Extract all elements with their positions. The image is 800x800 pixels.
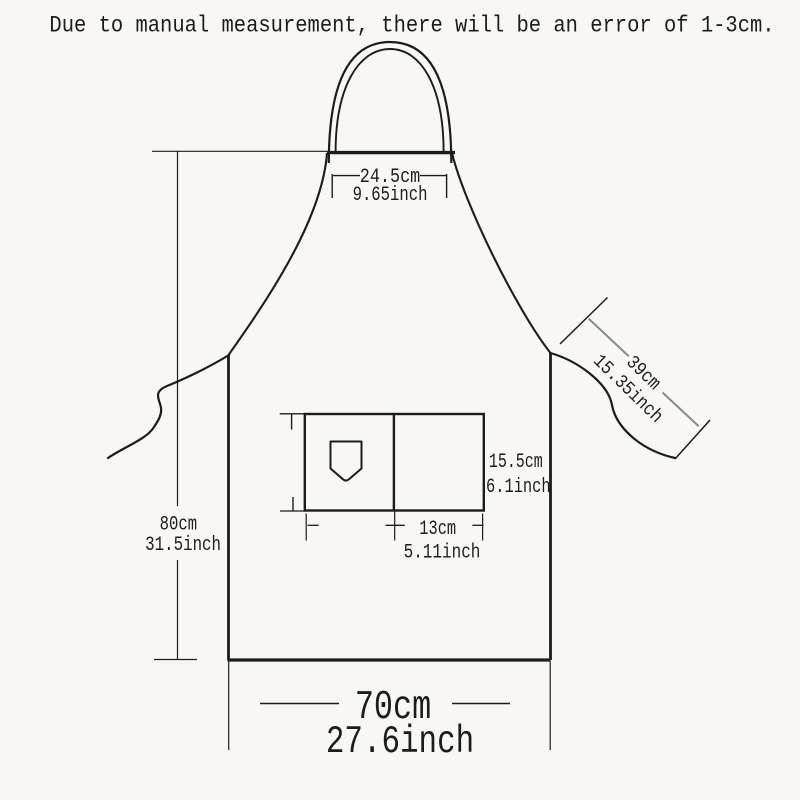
svg-text:80cm: 80cm [160,514,197,536]
svg-text:5.11inch: 5.11inch [404,542,481,564]
svg-text:31.5inch: 31.5inch [145,534,221,556]
svg-text:13cm: 13cm [419,518,456,540]
svg-text:6.1inch: 6.1inch [486,476,551,498]
svg-text:9.65inch: 9.65inch [353,184,428,206]
svg-text:Due to manual measurement, the: Due to manual measurement, there will be… [49,13,774,38]
svg-text:27.6inch: 27.6inch [326,720,474,764]
svg-text:15.5cm: 15.5cm [489,451,543,474]
